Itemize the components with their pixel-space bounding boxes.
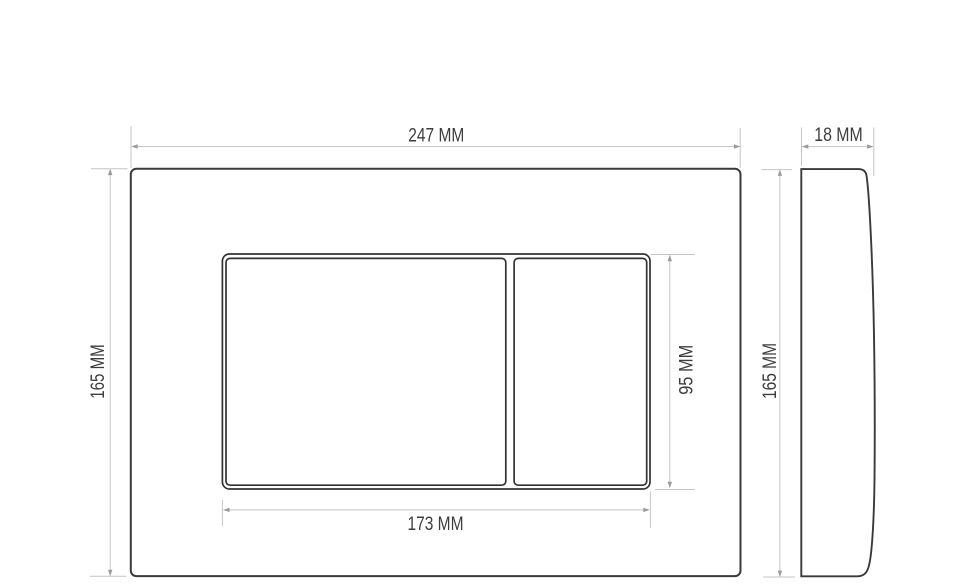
svg-text:95 MM: 95 MM — [677, 345, 698, 395]
svg-text:18 MM: 18 MM — [814, 125, 863, 146]
svg-text:165 MM: 165 MM — [88, 344, 109, 399]
svg-text:165 MM: 165 MM — [760, 343, 781, 399]
svg-text:173 MM: 173 MM — [408, 514, 464, 535]
svg-text:247 MM: 247 MM — [408, 126, 464, 147]
